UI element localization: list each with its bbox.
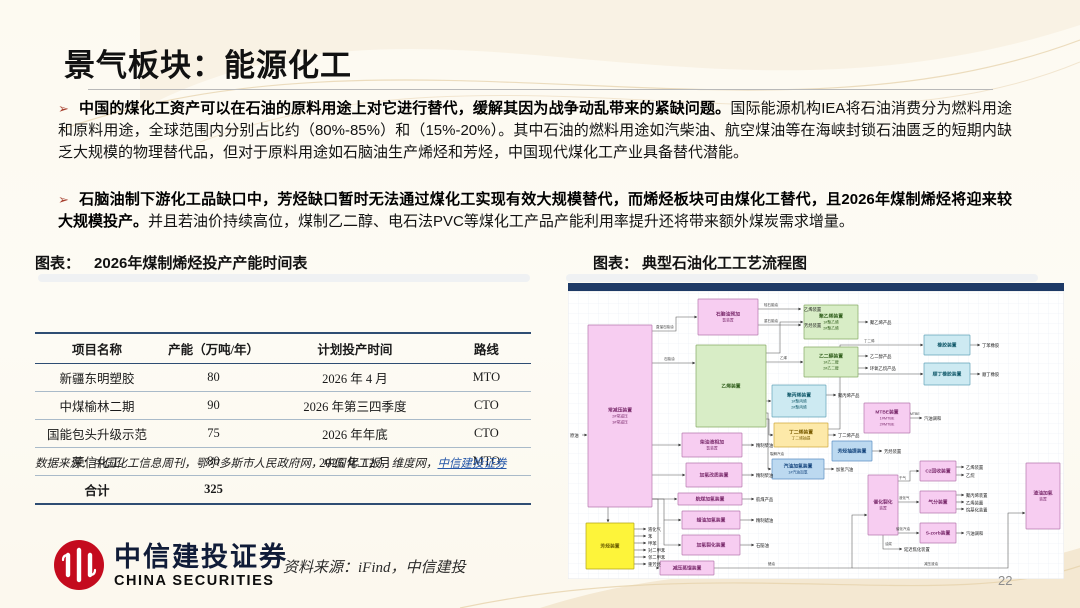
svg-text:加氢改质装置: 加氢改质装置 bbox=[699, 472, 729, 479]
cell-project: 中煤榆林二期 bbox=[35, 392, 159, 420]
col-header-capacity: 产能（万吨/年） bbox=[159, 333, 268, 364]
svg-text:烷基化装置: 烷基化装置 bbox=[966, 507, 988, 514]
svg-text:装置: 装置 bbox=[1039, 497, 1047, 502]
source-text: 数据来源：中国化工信息周刊，鄂尔多斯市人民政府网，中国化工报，维度网， bbox=[35, 458, 438, 470]
svg-text:气分装置: 气分装置 bbox=[927, 499, 947, 506]
svg-text:聚丙烯装置: 聚丙烯装置 bbox=[966, 492, 988, 499]
svg-text:催化裂化: 催化裂化 bbox=[873, 499, 892, 506]
svg-text:苯: 苯 bbox=[648, 533, 653, 540]
col-header-date: 计划投产时间 bbox=[268, 333, 442, 364]
flow-diagram-svg: 常减压装置2#常减压3#常减压石脑油预加氢装置乙烯装置柴油液相加氢装置加氢改质装… bbox=[568, 283, 1064, 579]
svg-text:氢装置: 氢装置 bbox=[722, 318, 734, 323]
svg-text:芳烃抽提装置: 芳烃抽提装置 bbox=[838, 448, 867, 455]
svg-text:汽油调和: 汽油调和 bbox=[966, 530, 983, 537]
cell-total-label: 合计 bbox=[35, 476, 159, 505]
svg-text:丁二烯装置: 丁二烯装置 bbox=[789, 429, 813, 436]
caption-band-right bbox=[566, 274, 1038, 282]
svg-text:油浆: 油浆 bbox=[885, 541, 893, 546]
capacity-table: 项目名称 产能（万吨/年） 计划投产时间 路线 新疆东明塑胶802026 年 4… bbox=[35, 332, 531, 505]
svg-text:聚丙烯装置: 聚丙烯装置 bbox=[786, 392, 811, 399]
svg-text:邻二甲苯: 邻二甲苯 bbox=[648, 554, 666, 561]
svg-text:裂解汽油: 裂解汽油 bbox=[770, 451, 784, 456]
svg-text:顺丁橡胶装置: 顺丁橡胶装置 bbox=[933, 371, 962, 378]
caption-prefix: 图表： bbox=[35, 255, 80, 272]
svg-text:精制蜡油: 精制蜡油 bbox=[756, 517, 773, 524]
svg-text:对二甲苯: 对二甲苯 bbox=[648, 547, 666, 554]
cell-capacity: 80 bbox=[159, 364, 268, 392]
svg-text:航煤加氢装置: 航煤加氢装置 bbox=[696, 496, 725, 503]
bullet-paragraph-1: ➢中国的煤化工资产可以在石油的原料用途上对它进行替代，缓解其因为战争动乱带来的紧… bbox=[58, 98, 1012, 164]
table-row: 中煤榆林二期902026 年第三四季度CTO bbox=[35, 392, 531, 420]
svg-text:甲苯: 甲苯 bbox=[648, 540, 657, 547]
svg-text:1#聚乙烯: 1#聚乙烯 bbox=[823, 320, 839, 325]
figure-caption-right: 图表：典型石油化工工艺流程图 bbox=[593, 252, 807, 273]
cell-capacity: 75 bbox=[159, 420, 268, 448]
citic-logo-icon bbox=[52, 538, 106, 592]
svg-text:石脑油: 石脑油 bbox=[664, 356, 675, 361]
brand-name-en: CHINA SECURITIES bbox=[114, 572, 288, 590]
svg-text:丁二烯抽提: 丁二烯抽提 bbox=[792, 436, 811, 441]
svg-text:乙烯装置: 乙烯装置 bbox=[804, 306, 822, 313]
svg-text:乙烯装置: 乙烯装置 bbox=[966, 464, 984, 471]
bullet-arrow-icon: ➢ bbox=[58, 192, 69, 207]
svg-text:S-zorb装置: S-zorb装置 bbox=[926, 530, 951, 537]
source-link[interactable]: 中信建投证券 bbox=[438, 458, 507, 470]
svg-text:渣油加氢: 渣油加氢 bbox=[1033, 490, 1052, 497]
svg-text:C2回收装置: C2回收装置 bbox=[925, 468, 951, 475]
cell-empty bbox=[442, 476, 531, 505]
svg-text:装置: 装置 bbox=[879, 506, 887, 511]
svg-text:氢装置: 氢装置 bbox=[706, 446, 718, 451]
caption-text: 2026年煤制烯烃投产产能时间表 bbox=[94, 255, 307, 272]
svg-text:轻石脑油: 轻石脑油 bbox=[764, 302, 778, 307]
svg-text:液化气: 液化气 bbox=[648, 526, 662, 533]
table-row: 新疆东明塑胶802026 年 4 月MTO bbox=[35, 364, 531, 392]
cell-route: CTO bbox=[442, 392, 531, 420]
svg-text:汽油加氢装置: 汽油加氢装置 bbox=[784, 463, 813, 470]
svg-text:丁二烯产品: 丁二烯产品 bbox=[838, 432, 859, 439]
svg-text:MTBE: MTBE bbox=[910, 412, 920, 416]
svg-text:直馏石脑油: 直馏石脑油 bbox=[656, 324, 674, 329]
svg-text:延迟焦化装置: 延迟焦化装置 bbox=[904, 546, 930, 553]
cell-route: CTO bbox=[442, 420, 531, 448]
bullet-2-text: 并且若油价持续高位，煤制乙二醇、电石法PVC等煤化工产品产能利用率提升还将带来额… bbox=[148, 213, 854, 230]
bullet-paragraph-2: ➢石脑油制下游化工品缺口中，芳烃缺口暂时无法通过煤化工实现有效大规模替代，而烯烃… bbox=[58, 189, 1012, 233]
col-header-route: 路线 bbox=[442, 333, 531, 364]
svg-text:芳烃装置: 芳烃装置 bbox=[884, 448, 902, 455]
title-divider bbox=[88, 89, 993, 90]
svg-text:2#MTBE: 2#MTBE bbox=[880, 423, 895, 427]
svg-text:聚丙烯产品: 聚丙烯产品 bbox=[838, 392, 859, 399]
diagram-top-bar bbox=[568, 283, 1064, 291]
svg-text:1#MTBE: 1#MTBE bbox=[880, 417, 895, 421]
slide-source-note: 资料来源：iFind，中信建投 bbox=[283, 556, 466, 577]
svg-text:常减压装置: 常减压装置 bbox=[608, 407, 632, 414]
svg-text:乙二醇装置: 乙二醇装置 bbox=[819, 353, 843, 360]
caption-band-left bbox=[38, 274, 530, 282]
svg-text:1#聚丙烯: 1#聚丙烯 bbox=[791, 399, 807, 404]
table-total-row: 合计325 bbox=[35, 476, 531, 505]
svg-text:MTBE装置: MTBE装置 bbox=[875, 409, 898, 416]
svg-text:柴油液相加: 柴油液相加 bbox=[699, 439, 724, 446]
svg-text:催化汽油: 催化汽油 bbox=[896, 526, 910, 531]
table-source-note: 数据来源：中国化工信息周刊，鄂尔多斯市人民政府网，中国化工报，维度网，中信建投证… bbox=[35, 455, 555, 471]
figure-caption-left: 图表：2026年煤制烯烃投产产能时间表 bbox=[35, 252, 307, 273]
svg-text:2#乙二醇: 2#乙二醇 bbox=[823, 366, 839, 371]
cell-route: MTO bbox=[442, 364, 531, 392]
svg-text:减压渣油: 减压渣油 bbox=[924, 561, 938, 566]
svg-text:顺丁橡胶: 顺丁橡胶 bbox=[982, 371, 1000, 378]
svg-text:减压蒸馏装置: 减压蒸馏装置 bbox=[673, 565, 702, 572]
bullet-1-bold-text: 中国的煤化工资产可以在石油的原料用途上对它进行替代，缓解其因为战争动乱带来的紧缺… bbox=[79, 100, 730, 117]
svg-text:干气: 干气 bbox=[899, 475, 907, 480]
svg-text:聚乙烯装置: 聚乙烯装置 bbox=[818, 313, 843, 320]
svg-text:乙烯装置: 乙烯装置 bbox=[721, 383, 740, 390]
cell-date: 2026 年第三四季度 bbox=[268, 392, 442, 420]
svg-text:蜡油: 蜡油 bbox=[768, 561, 776, 566]
svg-text:1#汽油加氢: 1#汽油加氢 bbox=[788, 470, 808, 475]
cell-capacity: 90 bbox=[159, 392, 268, 420]
svg-text:芳烃装置: 芳烃装置 bbox=[804, 322, 822, 329]
svg-text:重石脑油: 重石脑油 bbox=[764, 318, 778, 323]
cell-date: 2026 年 4 月 bbox=[268, 364, 442, 392]
bullet-arrow-icon: ➢ bbox=[58, 101, 69, 116]
svg-text:3#常减压: 3#常减压 bbox=[612, 420, 628, 425]
caption-text: 典型石油化工工艺流程图 bbox=[642, 255, 807, 272]
svg-text:2#聚乙烯: 2#聚乙烯 bbox=[823, 326, 839, 331]
svg-text:重芳烃: 重芳烃 bbox=[648, 561, 662, 568]
svg-text:蜡油加氢装置: 蜡油加氢装置 bbox=[697, 517, 726, 524]
svg-text:精制柴油: 精制柴油 bbox=[756, 442, 773, 449]
cell-project: 新疆东明塑胶 bbox=[35, 364, 159, 392]
page-title: 景气板块：能源化工 bbox=[64, 40, 352, 85]
flow-diagram: 常减压装置2#常减压3#常减压石脑油预加氢装置乙烯装置柴油液相加氢装置加氢改质装… bbox=[568, 283, 1064, 579]
svg-text:2#常减压: 2#常减压 bbox=[612, 414, 628, 419]
cell-empty bbox=[268, 476, 442, 505]
svg-text:橡胶装置: 橡胶装置 bbox=[937, 342, 956, 349]
page-number: 22 bbox=[998, 573, 1012, 588]
svg-text:环氧乙烷产品: 环氧乙烷产品 bbox=[870, 365, 896, 372]
svg-text:聚乙烯产品: 聚乙烯产品 bbox=[870, 319, 891, 326]
svg-text:1#乙二醇: 1#乙二醇 bbox=[823, 360, 839, 365]
caption-prefix: 图表： bbox=[593, 255, 638, 272]
company-logo bbox=[52, 538, 106, 597]
svg-text:原油: 原油 bbox=[570, 432, 579, 439]
svg-text:汽油调和: 汽油调和 bbox=[924, 415, 941, 422]
slide: 景气板块：能源化工 ➢中国的煤化工资产可以在石油的原料用途上对它进行替代，缓解其… bbox=[0, 0, 1080, 608]
svg-text:航煤产品: 航煤产品 bbox=[756, 496, 773, 503]
table-row: 国能包头升级示范752026 年年底CTO bbox=[35, 420, 531, 448]
svg-text:加氢裂化装置: 加氢裂化装置 bbox=[696, 542, 726, 549]
svg-text:2#聚丙烯: 2#聚丙烯 bbox=[791, 405, 807, 410]
svg-text:液化气: 液化气 bbox=[899, 495, 910, 500]
svg-text:丁二烯: 丁二烯 bbox=[864, 338, 875, 343]
svg-text:芳烃装置: 芳烃装置 bbox=[600, 543, 619, 550]
brand-name-cn: 中信建投证券 bbox=[114, 542, 288, 572]
svg-text:乙烯: 乙烯 bbox=[780, 355, 788, 360]
svg-text:乙烷: 乙烷 bbox=[966, 472, 975, 479]
cell-date: 2026 年年底 bbox=[268, 420, 442, 448]
capacity-table-wrap: 项目名称 产能（万吨/年） 计划投产时间 路线 新疆东明塑胶802026 年 4… bbox=[35, 332, 531, 505]
brand-text: 中信建投证券 CHINA SECURITIES bbox=[114, 542, 288, 590]
cell-total-value: 325 bbox=[159, 476, 268, 505]
cell-project: 国能包头升级示范 bbox=[35, 420, 159, 448]
svg-text:加氢汽油: 加氢汽油 bbox=[836, 466, 853, 473]
svg-text:石脑油预加: 石脑油预加 bbox=[715, 311, 740, 318]
svg-text:丁苯橡胶: 丁苯橡胶 bbox=[982, 342, 1000, 349]
table-header-row: 项目名称 产能（万吨/年） 计划投产时间 路线 bbox=[35, 333, 531, 364]
svg-text:精制柴油: 精制柴油 bbox=[756, 472, 773, 479]
svg-text:乙烯装置: 乙烯装置 bbox=[966, 500, 984, 507]
col-header-project: 项目名称 bbox=[35, 333, 159, 364]
svg-text:乙二醇产品: 乙二醇产品 bbox=[870, 353, 891, 360]
svg-text:石脑油: 石脑油 bbox=[756, 542, 769, 549]
